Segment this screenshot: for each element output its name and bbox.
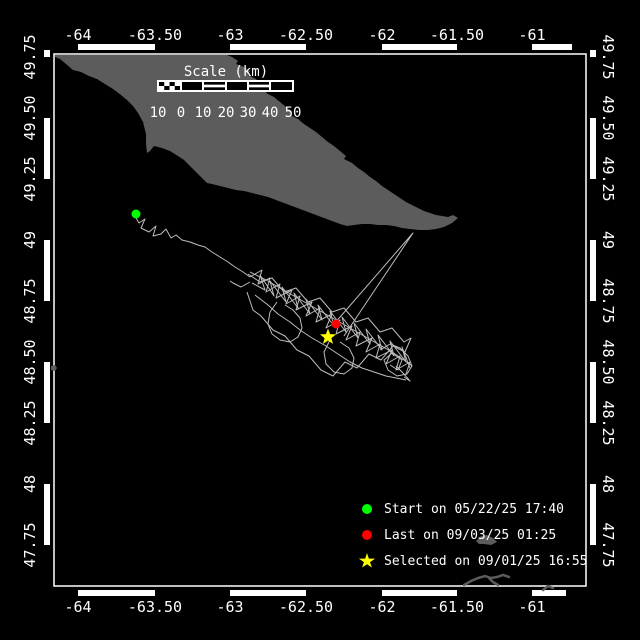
track-segment[interactable]: [136, 218, 250, 277]
scale-label-0: 10: [150, 105, 167, 121]
axis-label-left-2: 49.25: [21, 156, 39, 201]
legend-row-start: Start on 05/22/25 17:40: [358, 496, 588, 522]
axis-label-bottom-5: -61.50: [430, 598, 484, 616]
axis-label-right-7: 48: [599, 475, 617, 493]
small-island: [464, 575, 509, 585]
axis-label-top-3: -62.50: [279, 26, 333, 44]
selected-position-marker[interactable]: [320, 329, 336, 344]
axis-label-bottom-1: -63.50: [128, 598, 182, 616]
axis-label-right-5: 48.50: [599, 339, 617, 384]
scale-label-5: 40: [262, 105, 279, 121]
selected-marker-icon: [358, 553, 376, 569]
scale-label-6: 50: [285, 105, 302, 121]
start-marker-icon: [358, 504, 376, 514]
small-island: [51, 365, 57, 371]
legend-row-selected: Selected on 09/01/25 16:55: [358, 548, 588, 574]
axis-label-right-1: 49.50: [599, 95, 617, 140]
axis-label-right-3: 49: [599, 231, 617, 249]
axis-label-left-4: 48.75: [21, 278, 39, 323]
axis-label-top-5: -61.50: [430, 26, 484, 44]
axis-label-right-4: 48.75: [599, 278, 617, 323]
legend-start-label: Start on 05/22/25 17:40: [384, 502, 564, 517]
axis-label-top-1: -63.50: [128, 26, 182, 44]
animal-track[interactable]: [136, 218, 413, 381]
track-segment[interactable]: [230, 281, 250, 287]
axis-label-left-8: 47.75: [21, 522, 39, 567]
start-position-marker[interactable]: [132, 210, 141, 219]
last-position-marker[interactable]: [332, 320, 341, 329]
axis-label-top-4: -62: [368, 26, 395, 44]
legend: Start on 05/22/25 17:40 Last on 09/03/25…: [358, 496, 588, 574]
axis-label-right-8: 47.75: [599, 522, 617, 567]
axis-label-left-3: 49: [21, 231, 39, 249]
legend-last-label: Last on 09/03/25 01:25: [384, 528, 556, 543]
axis-label-bottom-2: -63: [216, 598, 243, 616]
tracking-map: -64-63.50-63-62.50-62-61.50-61-64-63.50-…: [0, 0, 640, 640]
axis-label-left-5: 48.50: [21, 339, 39, 384]
axis-label-top-6: -61: [518, 26, 545, 44]
scale-bar: [157, 80, 294, 92]
axis-label-right-2: 49.25: [599, 156, 617, 201]
legend-selected-label: Selected on 09/01/25 16:55: [384, 554, 588, 569]
scale-label-3: 20: [218, 105, 235, 121]
scale-label-2: 10: [195, 105, 212, 121]
scale-label-4: 30: [240, 105, 257, 121]
scale-bar-title: Scale (km): [184, 64, 268, 80]
axis-label-left-6: 48.25: [21, 400, 39, 445]
axis-label-bottom-6: -61: [518, 598, 545, 616]
axis-label-left-1: 49.50: [21, 95, 39, 140]
scale-label-1: 0: [177, 105, 185, 121]
axis-label-left-0: 49.75: [21, 34, 39, 79]
axis-label-top-2: -63: [216, 26, 243, 44]
axis-label-right-0: 49.75: [599, 34, 617, 79]
axis-label-bottom-0: -64: [64, 598, 91, 616]
axis-label-left-7: 48: [21, 475, 39, 493]
last-marker-icon: [358, 530, 376, 540]
track-segment[interactable]: [334, 233, 413, 336]
axis-label-bottom-4: -62: [368, 598, 395, 616]
small-island: [489, 578, 498, 585]
legend-row-last: Last on 09/03/25 01:25: [358, 522, 588, 548]
axis-label-top-0: -64: [64, 26, 91, 44]
axis-label-bottom-3: -62.50: [279, 598, 333, 616]
axis-label-right-6: 48.25: [599, 400, 617, 445]
